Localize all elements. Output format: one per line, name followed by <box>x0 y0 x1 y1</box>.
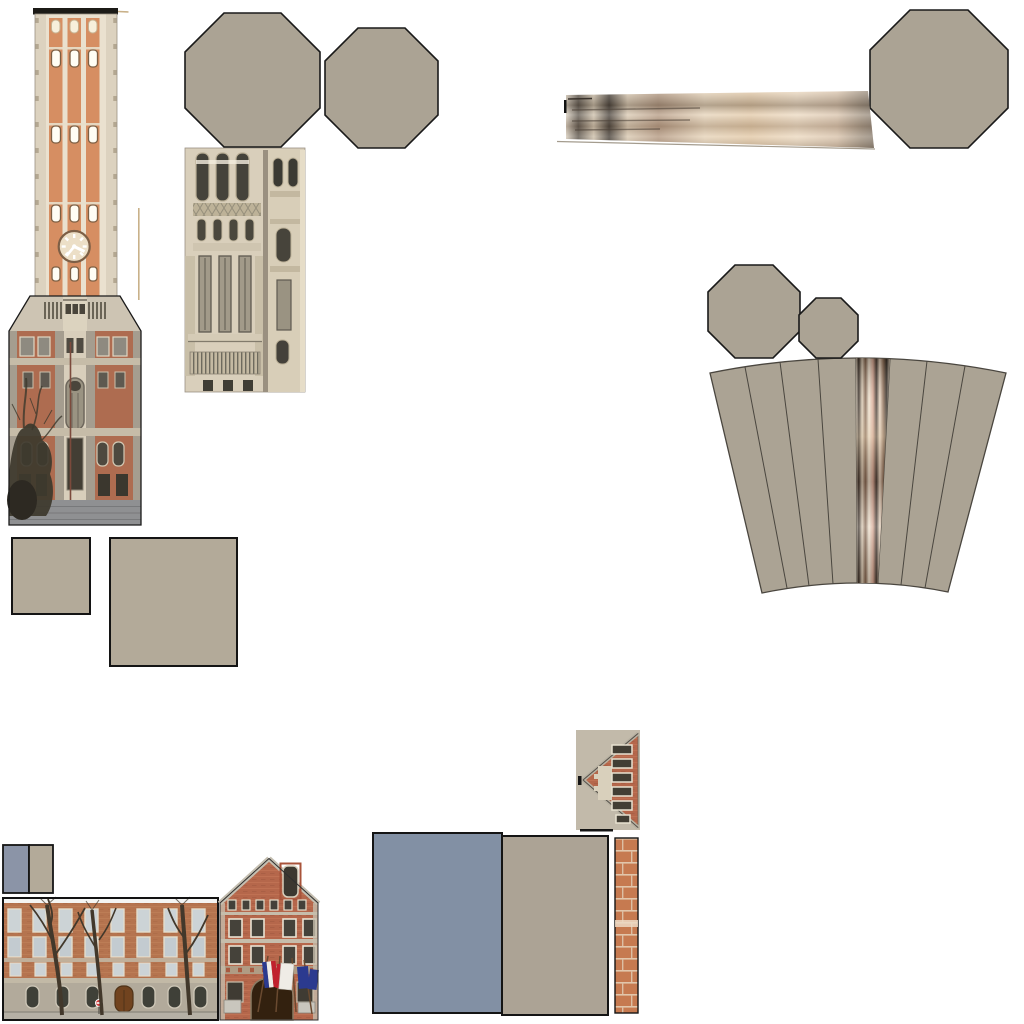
strip-top-tick <box>568 99 592 100</box>
window <box>70 205 79 222</box>
tower-cap-tan-line <box>118 12 129 13</box>
turret-molding-3 <box>270 266 304 272</box>
belfry-tower-texture <box>7 8 141 525</box>
window <box>71 267 79 281</box>
window <box>70 126 79 143</box>
octagon-mid <box>708 265 800 358</box>
plaque <box>224 1000 241 1013</box>
spire-octagons <box>708 265 858 358</box>
window <box>52 126 61 143</box>
turret-tall-window <box>277 280 291 330</box>
tower-cap-bar <box>33 8 118 15</box>
window <box>52 50 61 67</box>
shoulder-center-cap <box>63 299 87 301</box>
arch-window <box>89 20 98 33</box>
wall-rectangles <box>373 833 608 1015</box>
clock-center <box>72 244 76 248</box>
window <box>52 205 61 222</box>
tower-clock <box>59 231 90 262</box>
roof-color-swatch-pair <box>3 845 53 893</box>
facade-bottom-windows <box>203 380 253 391</box>
plain-squares <box>12 538 237 666</box>
turret-shadow-strip <box>263 150 268 392</box>
window <box>89 205 98 222</box>
lantern-facade-texture <box>185 148 305 392</box>
sill-band <box>49 202 100 205</box>
texture-atlas-canvas <box>0 0 1024 1024</box>
turret-molding-1 <box>270 191 304 197</box>
octagon-large-right <box>325 28 438 148</box>
base-center-tall-window <box>67 438 83 490</box>
cone-roof-unwrap-fan <box>710 358 1006 593</box>
cornice-band-2 <box>220 939 318 943</box>
square-large <box>110 538 237 666</box>
facade-glaze-streak <box>196 160 249 164</box>
blue-wall-rect <box>373 833 502 1013</box>
arch-window <box>70 20 79 33</box>
brick-strip-light-band <box>615 920 638 927</box>
swatch-taupe <box>29 845 53 893</box>
gable-window <box>283 866 298 897</box>
turret-molding-2 <box>270 219 304 224</box>
sill-band <box>49 47 100 50</box>
turret-lower-arch <box>276 340 289 364</box>
window <box>52 267 60 281</box>
swatch-blue <box>3 845 29 893</box>
cornice-band-1 <box>220 912 318 915</box>
base-stone-band-1 <box>9 358 141 365</box>
gabled-building-texture <box>220 859 319 1021</box>
school-sidewalk <box>3 1012 218 1020</box>
window <box>89 267 97 281</box>
window <box>70 50 79 67</box>
gable-triangle <box>220 859 318 904</box>
turret-mid-arch <box>276 228 291 262</box>
facade-lattice-band <box>193 203 261 216</box>
octagon-small <box>799 298 858 358</box>
arch-window <box>52 20 61 33</box>
square-small <box>12 538 90 614</box>
stretched-facade-strip <box>557 91 875 149</box>
facade-cornice <box>188 334 262 341</box>
window <box>89 126 98 143</box>
gable-apex-tick <box>578 776 582 785</box>
gable-step-notch <box>594 774 600 779</box>
white-flag <box>279 963 294 990</box>
tower-top-arches <box>52 20 98 33</box>
octagon-top-right <box>870 10 1008 148</box>
brick-column-strip <box>615 838 638 1013</box>
gable-bottom-line <box>580 829 613 832</box>
taupe-wall-rect <box>502 836 608 1015</box>
gable-side-texture <box>576 730 640 832</box>
turret-highlight <box>300 150 305 392</box>
school-facade-texture <box>3 897 218 1020</box>
facade-balustrade <box>190 352 260 374</box>
strip-photo-streaks <box>566 91 874 148</box>
gable-step-block <box>598 766 612 800</box>
facade-band <box>193 243 261 251</box>
plaque <box>298 1002 315 1013</box>
gable-step-notch <box>594 786 600 791</box>
octagon-large-left <box>185 13 320 147</box>
window <box>89 50 98 67</box>
bush-silhouette <box>7 480 37 520</box>
eu-flag-1 <box>297 966 310 989</box>
shoulder-center-windows <box>66 304 86 314</box>
strip-black-tick <box>564 100 567 113</box>
sill-band <box>49 123 100 126</box>
